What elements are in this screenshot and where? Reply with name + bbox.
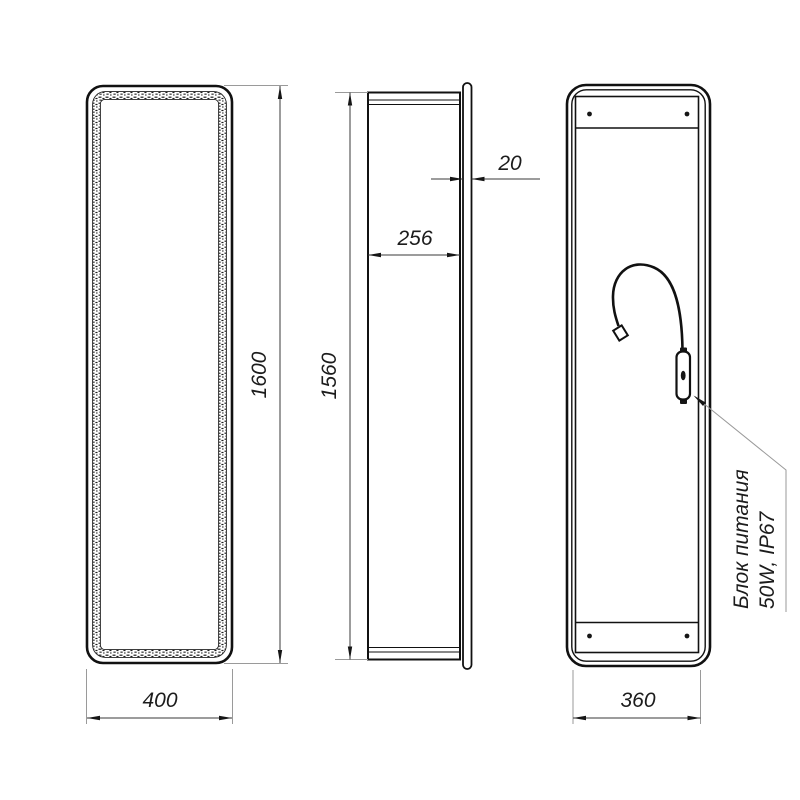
power-supply-block-icon	[677, 348, 691, 405]
arrowhead-icon	[278, 86, 282, 99]
arrowhead-icon	[688, 716, 701, 720]
technical-drawing-canvas: 1600 400 1560 256 2	[0, 0, 800, 800]
dim-label-panel-thickness: 20	[497, 152, 522, 175]
back-view	[567, 85, 710, 666]
mirror-panel-profile	[463, 83, 472, 669]
front-view	[87, 86, 232, 663]
dim-label-back-width: 360	[620, 689, 655, 712]
front-outline	[87, 86, 232, 663]
screw-icon	[587, 112, 592, 117]
arrowhead-icon	[348, 647, 352, 660]
dim-label-side-depth: 256	[396, 227, 432, 250]
arrowhead-icon	[348, 93, 352, 106]
arrowhead-icon	[278, 650, 282, 663]
callout-line2: 50W, IP67	[756, 510, 779, 609]
callout-line1: Блок питания	[730, 469, 753, 609]
arrowhead-icon	[472, 177, 485, 181]
arrowhead-icon	[87, 716, 100, 720]
side-body-outline	[368, 93, 460, 660]
screw-icon	[685, 112, 690, 117]
arrowhead-icon	[219, 716, 232, 720]
dim-label-front-height: 1600	[248, 351, 271, 398]
dim-front-width: 400	[87, 669, 233, 724]
mirror-cabinet-drawing: 1600 400 1560 256 2	[0, 0, 800, 800]
screw-icon	[685, 634, 690, 639]
side-view	[368, 83, 472, 669]
arrowhead-icon	[573, 716, 586, 720]
dim-side-height: 1560	[318, 93, 368, 660]
dim-label-front-width: 400	[142, 689, 177, 712]
dim-back-width: 360	[573, 670, 701, 724]
dim-label-side-height: 1560	[318, 352, 341, 399]
dim-front-height: 1600	[224, 86, 288, 664]
screw-icon	[587, 634, 592, 639]
